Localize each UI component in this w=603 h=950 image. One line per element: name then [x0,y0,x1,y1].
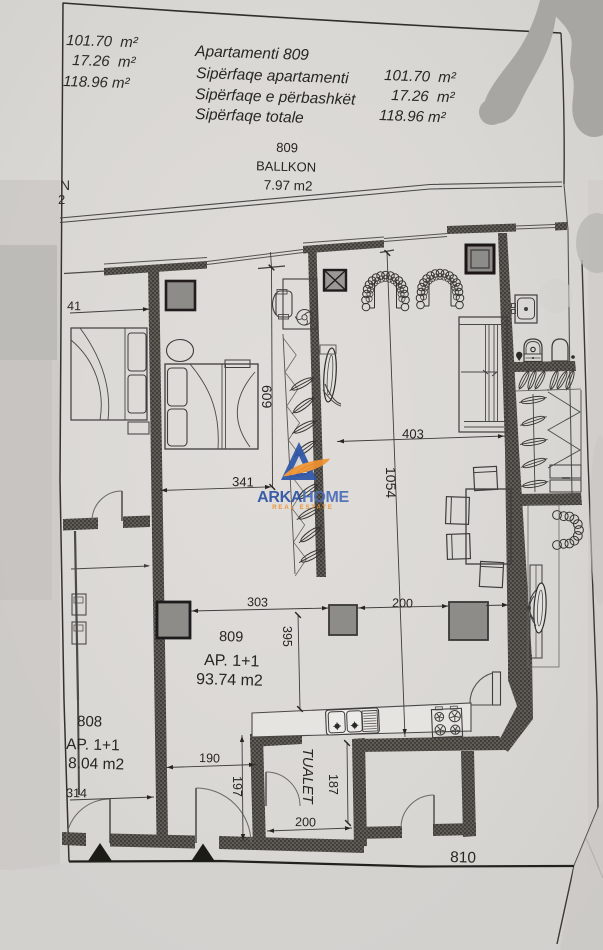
svg-text:41: 41 [67,299,81,313]
svg-text:REAL ESTATE: REAL ESTATE [272,505,334,511]
svg-text:AP. 1+1: AP. 1+1 [66,736,120,754]
svg-text:7.97 m2: 7.97 m2 [264,177,313,193]
svg-text:17.26 m²: 17.26 m² [72,52,137,71]
svg-text:TUALET: TUALET [299,748,315,805]
svg-text:609: 609 [259,385,275,409]
svg-text:2: 2 [58,192,65,207]
svg-text:809: 809 [219,629,244,646]
svg-text:118.96 m²: 118.96 m² [379,107,447,126]
svg-text:101.70 m²: 101.70 m² [66,32,139,51]
svg-text:809: 809 [276,140,298,156]
svg-text:395: 395 [280,626,294,647]
svg-text:93.74 m2: 93.74 m2 [196,671,263,690]
svg-text:341: 341 [232,474,254,490]
svg-text:17.26 m²: 17.26 m² [391,87,456,106]
svg-text:ARKAHOME: ARKAHOME [257,489,349,506]
svg-text:808: 808 [77,713,102,731]
svg-text:101.70 m²: 101.70 m² [384,67,457,87]
svg-text:118.96 m²: 118.96 m² [63,73,131,92]
svg-text:1054: 1054 [383,467,399,498]
svg-text:187: 187 [326,774,340,795]
svg-text:403: 403 [402,426,424,442]
svg-text:200: 200 [392,596,413,611]
svg-text:N: N [60,177,70,193]
svg-text:BALLKON: BALLKON [256,158,316,175]
svg-text:8.04 m2: 8.04 m2 [68,755,124,773]
svg-text:314: 314 [66,786,87,801]
svg-text:190: 190 [199,751,220,766]
svg-text:197: 197 [230,776,244,797]
svg-text:200: 200 [295,815,316,830]
svg-text:AP. 1+1: AP. 1+1 [204,652,260,670]
svg-text:810: 810 [450,849,477,867]
svg-text:303: 303 [247,595,268,610]
